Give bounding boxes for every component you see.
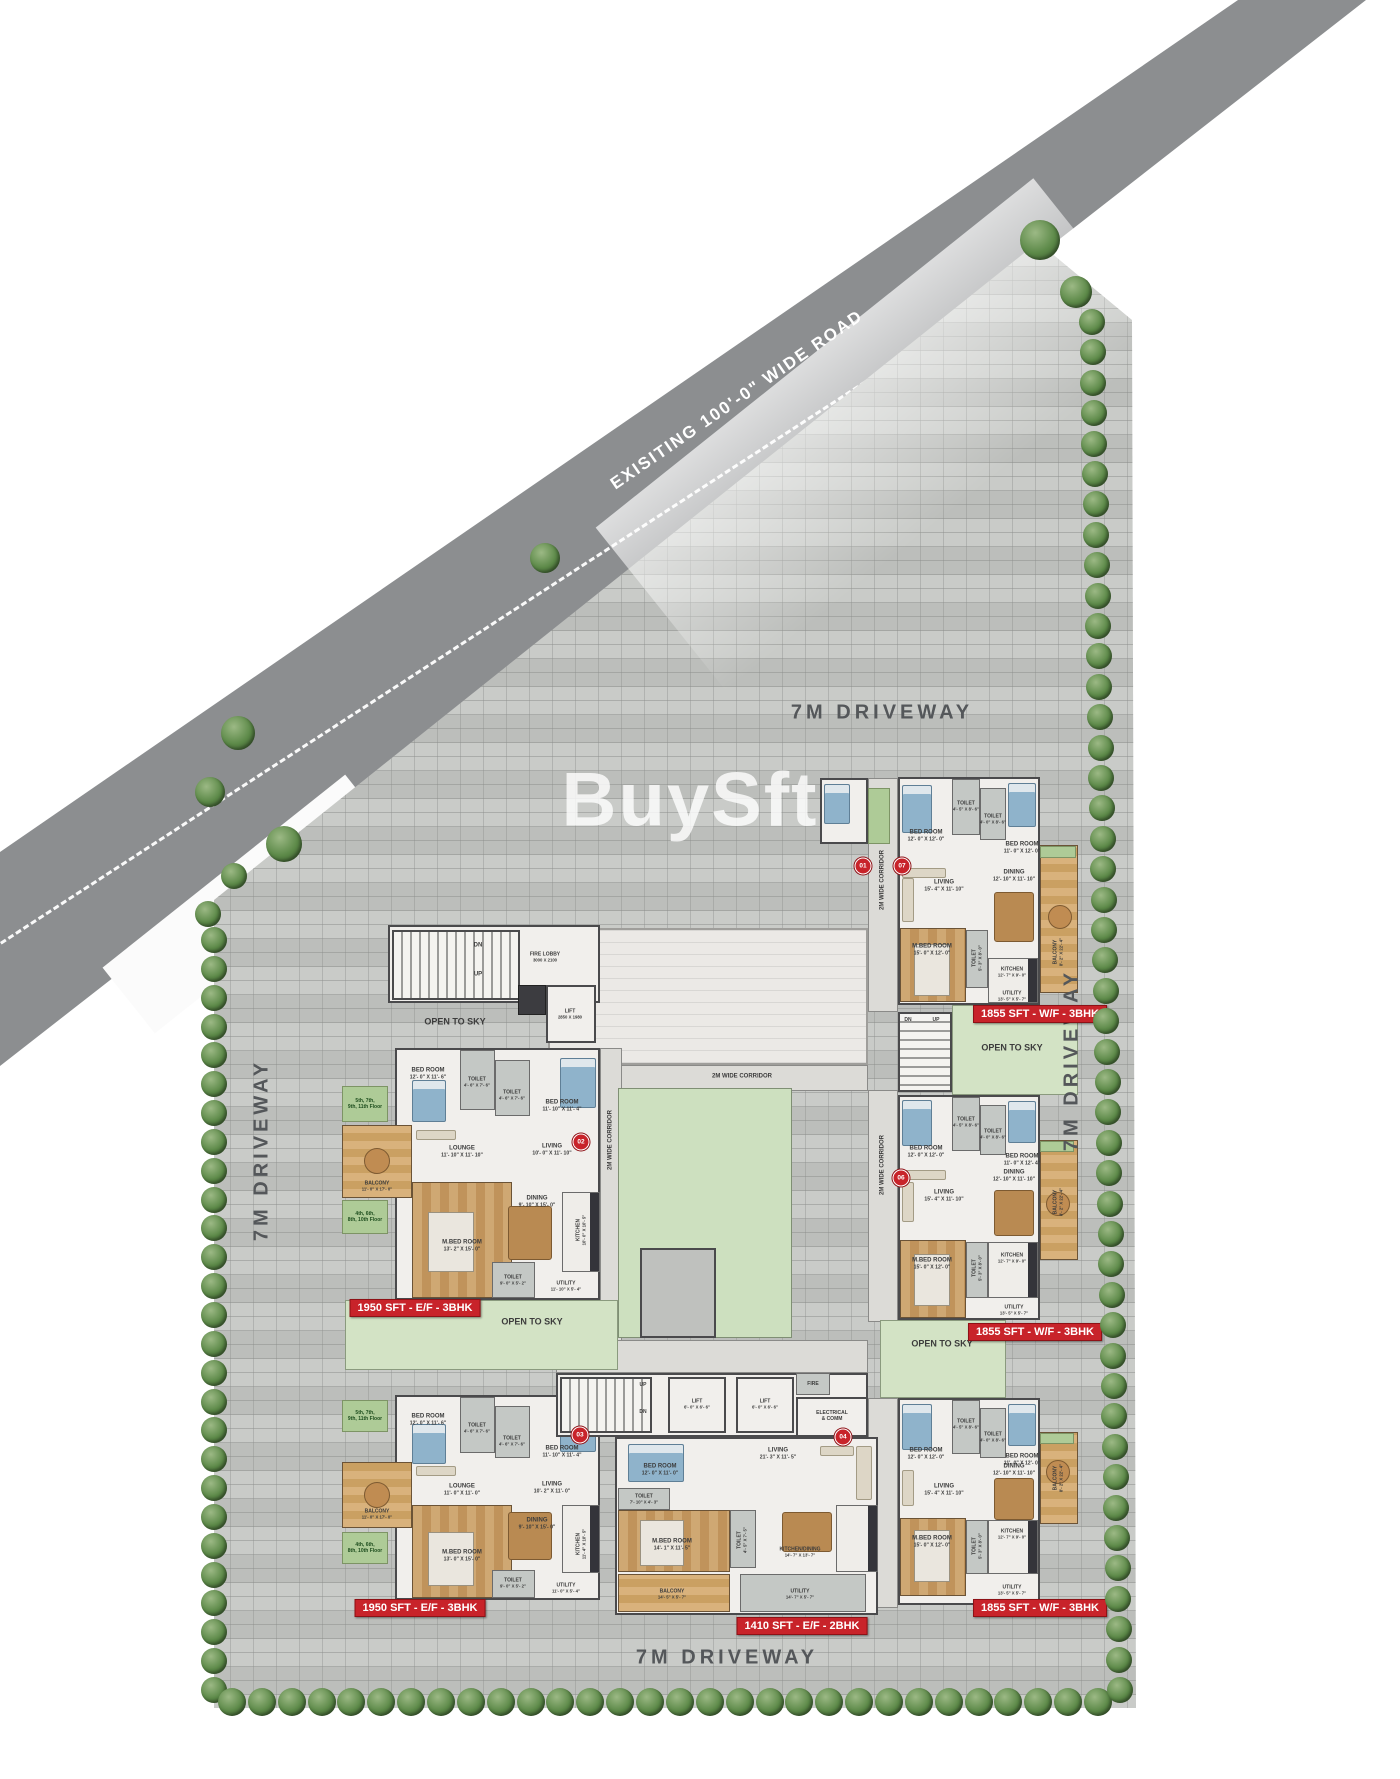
room-label-bed-room: BED ROOM12'- 0" X 11'- 6" [410, 1413, 446, 1426]
unit-marker-06: 06 [893, 1170, 910, 1187]
tree-icon [201, 1331, 227, 1357]
room-label-living: LIVING10'- 0" X 11'- 10" [532, 1143, 571, 1156]
room-label-balcony: BALCONY11'- 0" X 17'- 0" [362, 1180, 392, 1191]
tree-icon [201, 985, 227, 1011]
room-label-utility: UTILITY11'- 0" X 5'- 4" [552, 1582, 580, 1593]
room-label-utility: UTILITY14'- 7" X 5'- 7" [786, 1588, 814, 1599]
room-label-dining: DINING9'- 10" X 15'- 0" [519, 1517, 556, 1530]
tree-icon [1096, 1160, 1122, 1186]
room-label-balcony: BALCONY8'- 2" X 22'- 4" [1052, 1188, 1063, 1216]
tree-icon [1054, 1688, 1082, 1716]
tree-icon [1083, 522, 1109, 548]
plan-text-open-to-sky: OPEN TO SKY [501, 1317, 562, 1328]
toilet [495, 1060, 530, 1116]
room-label-fire-lobby: FIRE LOBBY3000 X 2100 [530, 951, 560, 962]
tree-icon [201, 1014, 227, 1040]
room-label-toilet: TOILET4'- 6" X 7'- 6" [464, 1422, 490, 1433]
room-label-kitchen: KITCHEN12'- 7" X 9'- 0" [998, 1528, 1026, 1539]
tree-icon [1083, 491, 1109, 517]
tree-icon [606, 1688, 634, 1716]
room-label-balcony: BALCONY11'- 0" X 17'- 0" [362, 1508, 392, 1519]
room-label-lift: LIFT2850 X 1980 [558, 1008, 582, 1019]
room-label-toilet: TOILET7'- 10" X 4'- 3" [630, 1493, 658, 1504]
sofa [902, 878, 914, 922]
room-label-m-bed-room: M.BED ROOM15'- 0" X 12'- 0" [912, 943, 952, 956]
tree-icon [1104, 1525, 1130, 1551]
tree-icon [666, 1688, 694, 1716]
bed-icon [824, 784, 850, 824]
tree-icon [195, 777, 225, 807]
unit-marker-01: 01 [855, 858, 872, 875]
bed-icon [412, 1424, 446, 1464]
tree-icon [1100, 1343, 1126, 1369]
tree-icon [195, 901, 221, 927]
tree-icon [994, 1688, 1022, 1716]
room-label-toilet: TOILET5'- 3" X 8'- 0" [971, 1533, 982, 1559]
tree-icon [1098, 1221, 1124, 1247]
tree-icon [201, 1562, 227, 1588]
tree-icon [530, 543, 560, 573]
bed-icon [902, 785, 932, 833]
room-label-living: LIVING15'- 4" X 11'- 10" [924, 879, 963, 892]
tree-icon [201, 1475, 227, 1501]
bed-icon [1008, 1404, 1036, 1446]
tree-icon [201, 1360, 227, 1386]
dining-table [994, 1190, 1034, 1236]
room-label-toilet: TOILET4'- 0" X 8'- 6" [980, 813, 1006, 824]
room-label-bed-room: BED ROOM11'- 0" X 12'- 0" [1004, 841, 1040, 854]
plan-text-dn: DN [639, 1409, 646, 1415]
room-label-m-bed-room: M.BED ROOM13'- 0" X 15'- 0" [442, 1549, 482, 1562]
tree-icon [308, 1688, 336, 1716]
planter [1040, 1433, 1074, 1444]
room-label-kitchen-dining: KITCHEN/DINING14'- 7" X 13'- 7" [779, 1546, 820, 1557]
kitchen [988, 1242, 1038, 1298]
room-label-toilet: TOILET4'- 5" X 8'- 6" [953, 1116, 979, 1127]
plan-text-electrical-comm: ELECTRICAL & COMM [816, 1410, 848, 1422]
tree-icon [201, 1619, 227, 1645]
room-label-kitchen: KITCHEN10'- 0" X 10'- 5" [575, 1215, 586, 1246]
tree-icon [397, 1688, 425, 1716]
tree-icon [278, 1688, 306, 1716]
area-badge: 1855 SFT - W/F - 3BHK [973, 1599, 1107, 1617]
room-label-living: LIVING21'- 3" X 11'- 5" [760, 1447, 796, 1460]
driveway-label-right: 7M DRIVEWAY [1061, 969, 1084, 1151]
tree-icon [1020, 220, 1060, 260]
room-label-lift: LIFT6'- 0" X 6'- 6" [684, 1398, 710, 1409]
plan-text-2m-wide-corridor: 2M WIDE CORRIDOR [607, 1110, 614, 1170]
area-badge: 1855 SFT - W/F - 3BHK [968, 1323, 1102, 1341]
tree-icon [1091, 887, 1117, 913]
tree-icon [201, 1504, 227, 1530]
tree-icon [337, 1688, 365, 1716]
tree-icon [201, 1129, 227, 1155]
tree-icon [576, 1688, 604, 1716]
room-label-bed-room: BED ROOM11'- 10" X 11'- 4" [543, 1445, 582, 1458]
tree-icon [1092, 947, 1118, 973]
unit-marker-03: 03 [572, 1427, 589, 1444]
tree-icon [1088, 765, 1114, 791]
tree-icon [201, 1158, 227, 1184]
plan-text-open-to-sky: OPEN TO SKY [981, 1043, 1042, 1054]
tree-icon [1094, 1039, 1120, 1065]
watermark: BuySft [562, 757, 819, 844]
tree-icon [487, 1688, 515, 1716]
tree-icon [756, 1688, 784, 1716]
tree-icon [201, 1215, 227, 1241]
room-label-m-bed-room: M.BED ROOM14'- 1" X 11'- 5" [652, 1538, 692, 1551]
tree-icon [785, 1688, 813, 1716]
tree-icon [1090, 856, 1116, 882]
stairs-bottom [560, 1377, 652, 1433]
tree-icon [1086, 674, 1112, 700]
room-label-m-bed-room: M.BED ROOM13'- 2" X 15'- 0" [442, 1239, 482, 1252]
room-label-toilet: TOILET4'- 6" X 7'- 6" [499, 1435, 525, 1446]
room-label-kitchen: KITCHEN11'- 4" X 10'- 5" [575, 1529, 586, 1559]
tree-icon [201, 1446, 227, 1472]
tree-icon [1107, 1677, 1133, 1703]
tree-icon [248, 1688, 276, 1716]
tree-icon [1097, 1191, 1123, 1217]
round-table [364, 1148, 390, 1174]
stairs-right [898, 1012, 952, 1092]
room-label-toilet: TOILET4'- 5" X 8'- 6" [953, 800, 979, 811]
tree-icon [1080, 370, 1106, 396]
plan-text-up: UP [474, 971, 482, 978]
tree-icon [1087, 704, 1113, 730]
room-label-toilet: TOILET9'- 0" X 5'- 2" [500, 1577, 526, 1588]
tree-icon [201, 1417, 227, 1443]
plan-text-2m-wide-corridor: 2M WIDE CORRIDOR [879, 1135, 886, 1195]
sofa [902, 1182, 914, 1222]
courtyard-notch [640, 1248, 716, 1338]
room-label-m-bed-room: M.BED ROOM15'- 0" X 12'- 0" [912, 1535, 952, 1548]
tree-icon [201, 1648, 227, 1674]
bed-icon [902, 1404, 932, 1450]
tree-icon [1103, 1464, 1129, 1490]
tree-icon [1093, 978, 1119, 1004]
tree-icon [1024, 1688, 1052, 1716]
tree-icon [1088, 735, 1114, 761]
tree-icon [201, 1389, 227, 1415]
tree-icon [1085, 583, 1111, 609]
tree-icon [1101, 1403, 1127, 1429]
room-label-toilet: TOILET4'- 0" X 8'- 6" [980, 1128, 1006, 1139]
tree-icon [1106, 1616, 1132, 1642]
tree-icon [1105, 1586, 1131, 1612]
room-label-bed-room: BED ROOM12'- 0" X 12'- 0" [908, 829, 945, 842]
tree-icon [1091, 917, 1117, 943]
plan-text-4th-6th-8th-10th-floor: 4th, 6th, 8th, 10th Floor [348, 1542, 382, 1554]
tree-icon [1105, 1555, 1131, 1581]
room-label-utility: UTILITY13'- 5" X 5'- 7" [998, 990, 1026, 1001]
room-label-lounge: LOUNGE11'- 0" X 11'- 0" [444, 1483, 480, 1496]
tree-icon [218, 1688, 246, 1716]
tree-icon [1106, 1647, 1132, 1673]
tree-icon [696, 1688, 724, 1716]
tree-icon [726, 1688, 754, 1716]
area-badge: 1950 SFT - E/F - 3BHK [350, 1299, 481, 1317]
room-label-bed-room: BED ROOM11'- 0" X 12'- 4" [1004, 1153, 1040, 1166]
corridor-right-mid [868, 1090, 898, 1322]
tree-icon [1102, 1434, 1128, 1460]
plan-text-open-to-sky: OPEN TO SKY [424, 1017, 485, 1028]
tree-icon [1100, 1312, 1126, 1338]
plan-text-up: UP [640, 1382, 647, 1388]
room-label-toilet: TOILET4'- 6" X 7'- 6" [499, 1089, 525, 1100]
room-label-balcony: BALCONY14'- 5" X 5'- 7" [658, 1588, 686, 1599]
tree-icon [875, 1688, 903, 1716]
tree-icon [1090, 826, 1116, 852]
planter [1040, 846, 1076, 858]
room-label-toilet: TOILET5'- 3" X 8'- 0" [971, 1255, 982, 1281]
room-label-m-bed-room: M.BED ROOM15'- 0" X 12'- 0" [912, 1257, 952, 1270]
room-label-balcony: BALCONY8'- 2" X 22'- 4" [1052, 938, 1063, 966]
tree-icon [201, 1244, 227, 1270]
room-label-dining: DINING12'- 10" X 11'- 10" [993, 1169, 1035, 1182]
toilet [495, 1406, 530, 1458]
tree-icon [266, 826, 302, 862]
tree-icon [1080, 339, 1106, 365]
room-label-bed-room: BED ROOM12'- 0" X 12'- 0" [908, 1447, 945, 1460]
room-label-toilet: TOILET4'- 0" X 8'- 6" [980, 1431, 1006, 1442]
tree-icon [221, 716, 255, 750]
tree-icon [367, 1688, 395, 1716]
room-label-toilet: TOILET9'- 0" X 5'- 2" [500, 1274, 526, 1285]
room-label-toilet: TOILET4'- 5" X 7'- 5" [736, 1527, 747, 1553]
bed-icon [1008, 1101, 1036, 1143]
tree-icon [201, 1100, 227, 1126]
tree-icon [201, 927, 227, 953]
sofa [416, 1130, 456, 1140]
unit-marker-07: 07 [894, 858, 911, 875]
tree-icon [201, 1187, 227, 1213]
driveway-label-top: 7M DRIVEWAY [791, 702, 973, 725]
room-label-kitchen: KITCHEN12'- 7" X 9'- 0" [998, 966, 1026, 977]
room-label-lounge: LOUNGE11'- 10" X 11'- 10" [441, 1145, 483, 1158]
room-label-utility: UTILITY11'- 10" X 5'- 4" [551, 1280, 581, 1291]
plan-text-up: UP [933, 1017, 940, 1023]
plan-text-fire: FIRE [807, 1381, 818, 1387]
tree-icon [201, 1273, 227, 1299]
tree-icon [935, 1688, 963, 1716]
tree-icon [1103, 1495, 1129, 1521]
tree-icon [427, 1688, 455, 1716]
tree-icon [636, 1688, 664, 1716]
tree-icon [1081, 400, 1107, 426]
dining-table [508, 1206, 552, 1260]
room-label-toilet: TOILET4'- 6" X 7'- 6" [464, 1076, 490, 1087]
area-badge: 1410 SFT - E/F - 2BHK [737, 1617, 868, 1635]
round-table [364, 1482, 390, 1508]
plan-text-open-to-sky: OPEN TO SKY [911, 1339, 972, 1350]
tree-icon [201, 1590, 227, 1616]
tree-icon [1084, 552, 1110, 578]
room-label-toilet: TOILET4'- 5" X 8'- 6" [953, 1418, 979, 1429]
planter-top [868, 788, 890, 844]
dining-table [994, 892, 1034, 942]
sofa [902, 1470, 914, 1506]
tree-icon [1098, 1251, 1124, 1277]
tree-icon [1099, 1282, 1125, 1308]
shaft-top-left [518, 985, 546, 1015]
room-label-dining: DINING9'- 10" X 15'- 0" [519, 1195, 556, 1208]
tree-icon [1086, 643, 1112, 669]
room-label-kitchen: KITCHEN12'- 7" X 9'- 0" [998, 1252, 1026, 1263]
plan-text-5th-7th-9th-11th-floor: 5th, 7th, 9th, 11th Floor [348, 1098, 382, 1110]
tree-icon [1096, 1130, 1122, 1156]
tree-icon [1060, 276, 1092, 308]
area-badge: 1950 SFT - E/F - 3BHK [355, 1599, 486, 1617]
room-label-utility: UTILITY13'- 5" X 5'- 7" [1000, 1304, 1028, 1315]
room-label-bed-room: BED ROOM11'- 10" X 11'- 4" [543, 1099, 582, 1112]
tree-icon [457, 1688, 485, 1716]
tree-icon [1082, 461, 1108, 487]
room-label-living: LIVING15'- 4" X 11'- 10" [924, 1483, 963, 1496]
tree-icon [1081, 431, 1107, 457]
bed-icon [902, 1100, 932, 1146]
tree-icon [1101, 1373, 1127, 1399]
plan-text-dn: DN [474, 942, 483, 949]
tree-icon [546, 1688, 574, 1716]
tree-icon [1089, 795, 1115, 821]
kitchen [836, 1505, 878, 1572]
tree-icon [965, 1688, 993, 1716]
room-label-dining: DINING12'- 10" X 11'- 10" [993, 1463, 1035, 1476]
tree-icon [201, 1533, 227, 1559]
driveway-label-left: 7M DRIVEWAY [251, 1059, 274, 1241]
unit-marker-04: 04 [835, 1429, 852, 1446]
tree-icon [815, 1688, 843, 1716]
unit-marker-02: 02 [573, 1134, 590, 1151]
room-label-living: LIVING10'- 2" X 11'- 0" [534, 1481, 570, 1494]
tree-icon [905, 1688, 933, 1716]
tree-icon [1095, 1099, 1121, 1125]
room-label-toilet: TOILET5'- 3" X 8'- 0" [971, 945, 982, 971]
bed-icon [1008, 783, 1036, 827]
room-label-balcony: BALCONY8'- 2" X 22'- 4" [1052, 1464, 1063, 1492]
room-label-dining: DINING12'- 10" X 11'- 10" [993, 869, 1035, 882]
area-badge: 1855 SFT - W/F - 3BHK [973, 1005, 1107, 1023]
round-table [1048, 905, 1072, 929]
plan-text-2m-wide-corridor: 2M WIDE CORRIDOR [712, 1073, 772, 1080]
tree-icon [1095, 1069, 1121, 1095]
plan-text-2m-wide-corridor: 2M WIDE CORRIDOR [879, 850, 886, 910]
plan-text-5th-7th-9th-11th-floor: 5th, 7th, 9th, 11th Floor [348, 1410, 382, 1422]
room-label-bed-room: BED ROOM12'- 0" X 12'- 0" [908, 1145, 945, 1158]
driveway-label-bottom: 7M DRIVEWAY [636, 1647, 818, 1670]
plan-text-dn: DN [904, 1017, 911, 1023]
bed-icon [412, 1080, 446, 1122]
site-plan-canvas: ENTRY EXISITING 100'-0" WIDE ROAD PROPOS… [0, 0, 1400, 1779]
sofa [416, 1466, 456, 1476]
tree-icon [201, 1302, 227, 1328]
tree-icon [201, 956, 227, 982]
sofa [820, 1446, 854, 1456]
tree-icon [201, 1042, 227, 1068]
stairs-top-left [392, 930, 520, 1000]
sofa [856, 1446, 872, 1500]
tree-icon [221, 863, 247, 889]
tree-icon [1093, 1008, 1119, 1034]
room-label-bed-room: BED ROOM12'- 0" X 11'- 6" [410, 1067, 446, 1080]
plan-text-4th-6th-8th-10th-floor: 4th, 6th, 8th, 10th Floor [348, 1211, 382, 1223]
room-label-utility: UTILITY13'- 5" X 5'- 7" [998, 1584, 1026, 1595]
tree-icon [1085, 613, 1111, 639]
tree-icon [1079, 309, 1105, 335]
dining-table [994, 1478, 1034, 1520]
tree-icon [517, 1688, 545, 1716]
room-label-living: LIVING15'- 4" X 11'- 10" [924, 1189, 963, 1202]
room-label-lift: LIFT6'- 0" X 6'- 6" [752, 1398, 778, 1409]
room-label-bed-room: BED ROOM12'- 0" X 11'- 0" [642, 1463, 678, 1476]
tree-icon [845, 1688, 873, 1716]
tree-icon [201, 1071, 227, 1097]
